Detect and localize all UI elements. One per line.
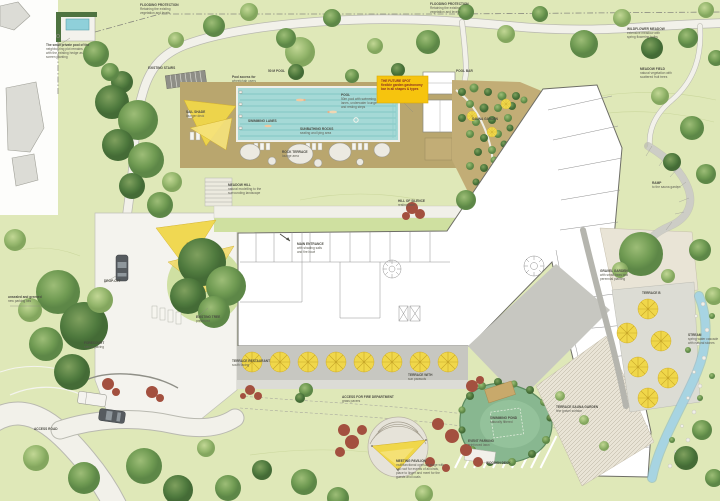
plan-label-7: 50 M POOL [268, 69, 285, 73]
parasol-icon [638, 388, 658, 408]
plan-label-30: WOODEN DECK [486, 461, 511, 465]
plan-label-26: ACCESS ROAD [34, 427, 58, 431]
plan-label-13: POOL BAR [456, 69, 473, 73]
parasol-icon [658, 368, 678, 388]
site-plan-drawing: FLOODING PROTECTIONRetaining the existin… [0, 0, 720, 501]
parasol-icon [410, 352, 430, 372]
parasol-icon [438, 352, 458, 372]
private-pool [66, 19, 89, 30]
parasol-icon [638, 299, 658, 319]
plan-label-9: SWIMMING LANES [248, 119, 277, 123]
private-pool-plot [56, 12, 97, 42]
neighbor-parcels [0, 0, 58, 215]
parasol-icon [382, 352, 402, 372]
plan-label-19: DROP-OFF [104, 279, 121, 283]
site-plan: FLOODING PROTECTIONRetaining the existin… [0, 0, 720, 501]
plan-label-15: SAUNA GARDEN [472, 117, 499, 121]
parasol-icon [617, 323, 637, 343]
parasol-icon [298, 352, 318, 372]
plan-label-5: EXISTING STAIRS [148, 66, 175, 70]
plan-label-32: GRAVEL GARDENwith small trees andperenni… [600, 269, 628, 281]
plan-label-10: SUNBATHING ROCKSseating and lying area [300, 127, 333, 135]
plan-label-22: FORECOURTnatural paving [84, 341, 104, 349]
parasol-icon [501, 99, 511, 109]
plan-label-12: SAIL SHADElounger deck [186, 110, 205, 118]
parasol-icon [628, 357, 648, 377]
parasol-icon [651, 331, 671, 351]
parasol-icon [487, 127, 497, 137]
parasol-icon [326, 352, 346, 372]
parasol-icon [354, 352, 374, 372]
plan-label-6: Pool access forwheelchair users [232, 75, 256, 83]
plan-label-33: TERRACE B [642, 291, 661, 295]
parasol-icon [270, 352, 290, 372]
car-icon [116, 255, 128, 281]
